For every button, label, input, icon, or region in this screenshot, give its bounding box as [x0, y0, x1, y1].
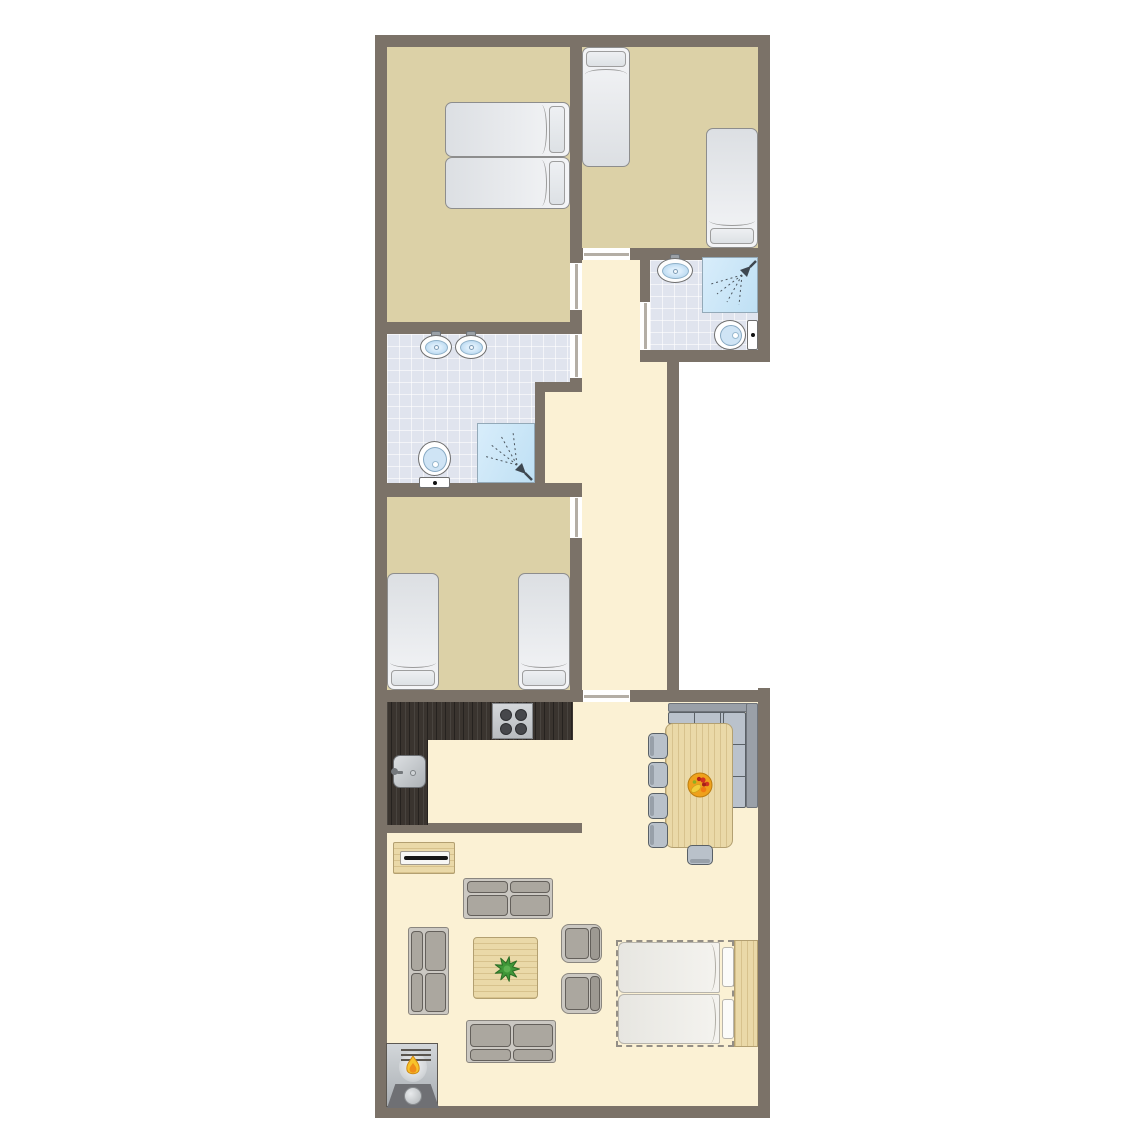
- seat-cushion: [425, 931, 446, 971]
- back-cushion: [411, 973, 423, 1013]
- fruit-bowl: [687, 772, 713, 798]
- wall: [758, 35, 770, 362]
- sink-drain: [469, 345, 474, 350]
- dining-chair: [687, 845, 713, 865]
- toilet-button: [751, 333, 755, 337]
- burner: [500, 723, 512, 735]
- washbasin: [656, 254, 694, 284]
- seat-cushion: [467, 895, 508, 916]
- tv-panel: [400, 851, 450, 865]
- shower-head-icon: [478, 424, 536, 484]
- armchair: [561, 924, 602, 963]
- seat-cushion: [510, 895, 551, 916]
- chair-back: [650, 736, 654, 756]
- sink-drain: [673, 269, 678, 274]
- sofa-bottom: [466, 1020, 556, 1063]
- wall: [667, 362, 679, 700]
- tv-sideboard: [393, 842, 455, 874]
- chair-back: [650, 796, 654, 816]
- wall: [570, 248, 583, 260]
- shower: [702, 257, 758, 313]
- hallway-floor-a: [582, 260, 640, 362]
- drain: [410, 770, 416, 776]
- washbasin: [419, 331, 453, 360]
- back-cushion: [470, 1049, 511, 1061]
- wall: [375, 35, 387, 1118]
- sink-bowl: [657, 258, 693, 283]
- door-bedroom-3-leaf: [575, 498, 578, 537]
- wall: [640, 350, 770, 362]
- flame-wrap: [404, 1056, 422, 1078]
- plant-icon: [494, 956, 520, 982]
- sofa-left: [408, 927, 449, 1015]
- toilet-drain: [732, 332, 739, 339]
- bed-pillow: [391, 670, 435, 686]
- dining-chair: [648, 793, 668, 819]
- fireplace-knob: [404, 1087, 422, 1105]
- dining-chair: [648, 733, 668, 759]
- burner: [500, 709, 512, 721]
- bed-pillow: [586, 51, 626, 67]
- bed-pillow: [722, 999, 734, 1039]
- wall: [375, 483, 582, 497]
- fruit-icon: [687, 772, 713, 798]
- back-cushion: [590, 976, 600, 1011]
- bed-twin-left: [387, 573, 439, 690]
- blanket-edge: [709, 217, 755, 226]
- bed-twin-right: [518, 573, 570, 690]
- blanket-edge: [521, 659, 567, 668]
- door-hallway-living-leaf: [584, 695, 629, 698]
- armchair: [561, 973, 602, 1014]
- seat-cushion: [565, 928, 589, 959]
- toilet: [714, 320, 758, 350]
- headboard: [734, 940, 758, 1047]
- fireplace: [386, 1043, 438, 1107]
- toilet: [418, 441, 451, 488]
- blanket-edge: [707, 996, 716, 1043]
- bench-backrest: [668, 703, 758, 712]
- mattress: [618, 994, 720, 1044]
- toilet-bowl: [714, 320, 746, 350]
- stove: [492, 703, 533, 739]
- back-cushion: [513, 1049, 554, 1061]
- toilet-basin: [423, 447, 447, 472]
- vent-line: [401, 1049, 431, 1051]
- washbasin: [454, 331, 488, 360]
- wall: [640, 260, 650, 302]
- back-cushion: [411, 931, 423, 971]
- door-bedroom-2-leaf: [584, 253, 629, 256]
- faucet-spout: [397, 771, 403, 774]
- bed-pillow: [549, 161, 565, 205]
- bed-single-right: [706, 128, 758, 248]
- toilet-drain: [432, 461, 439, 468]
- mattress: [618, 942, 720, 993]
- burner: [515, 709, 527, 721]
- burner: [515, 723, 527, 735]
- apartment-floor-plan: [0, 0, 1145, 1145]
- wall: [758, 688, 770, 1118]
- bed-pillow: [522, 670, 566, 686]
- bench-backrest: [746, 703, 758, 808]
- sink-bowl: [420, 335, 452, 359]
- sofa-bed: [616, 940, 758, 1047]
- seat-cushion: [513, 1024, 554, 1047]
- sink-bowl: [455, 335, 487, 359]
- dining-chair: [648, 762, 668, 788]
- hallway-floor-b: [582, 362, 667, 690]
- kitchen-counter-top: [387, 702, 573, 740]
- shower-head-icon: [703, 258, 759, 314]
- blanket-edge: [538, 160, 547, 206]
- toilet-button: [433, 481, 437, 485]
- wall: [570, 538, 582, 702]
- chair-back: [650, 825, 654, 845]
- bed-double-bottom: [445, 157, 570, 209]
- seat-cushion: [425, 973, 446, 1013]
- kitchen-sink: [393, 755, 426, 788]
- back-cushion: [510, 881, 551, 893]
- bed-pillow: [722, 947, 734, 987]
- wall: [375, 690, 583, 702]
- bed-single-left: [582, 47, 630, 167]
- wall: [570, 47, 582, 263]
- door-bathroom-2-leaf: [644, 303, 647, 349]
- blanket-edge: [538, 105, 547, 154]
- door-bedroom-1-leaf: [575, 264, 578, 309]
- back-cushion: [590, 927, 600, 960]
- bed-double-top: [445, 102, 570, 157]
- plant: [494, 956, 520, 982]
- chair-back: [690, 859, 710, 863]
- seat-cushion: [470, 1024, 511, 1047]
- sofa-top: [463, 878, 553, 919]
- bed-pillow: [549, 106, 565, 153]
- toilet-bowl: [418, 441, 451, 476]
- blanket-edge: [707, 944, 716, 991]
- sink-drain: [434, 345, 439, 350]
- hallway-floor-c: [545, 392, 582, 483]
- flame-icon: [404, 1056, 422, 1078]
- wall: [630, 690, 770, 702]
- seat-cushion: [565, 977, 589, 1010]
- blanket-edge: [390, 659, 436, 668]
- tv-icon: [404, 856, 448, 860]
- wall: [375, 35, 770, 47]
- shower: [477, 423, 535, 483]
- bed-pillow: [710, 228, 754, 244]
- door-bathroom-1-leaf: [575, 335, 578, 377]
- back-cushion: [467, 881, 508, 893]
- blanket-edge: [585, 69, 627, 78]
- wall: [535, 382, 545, 483]
- dining-chair: [648, 822, 668, 848]
- chair-back: [650, 765, 654, 785]
